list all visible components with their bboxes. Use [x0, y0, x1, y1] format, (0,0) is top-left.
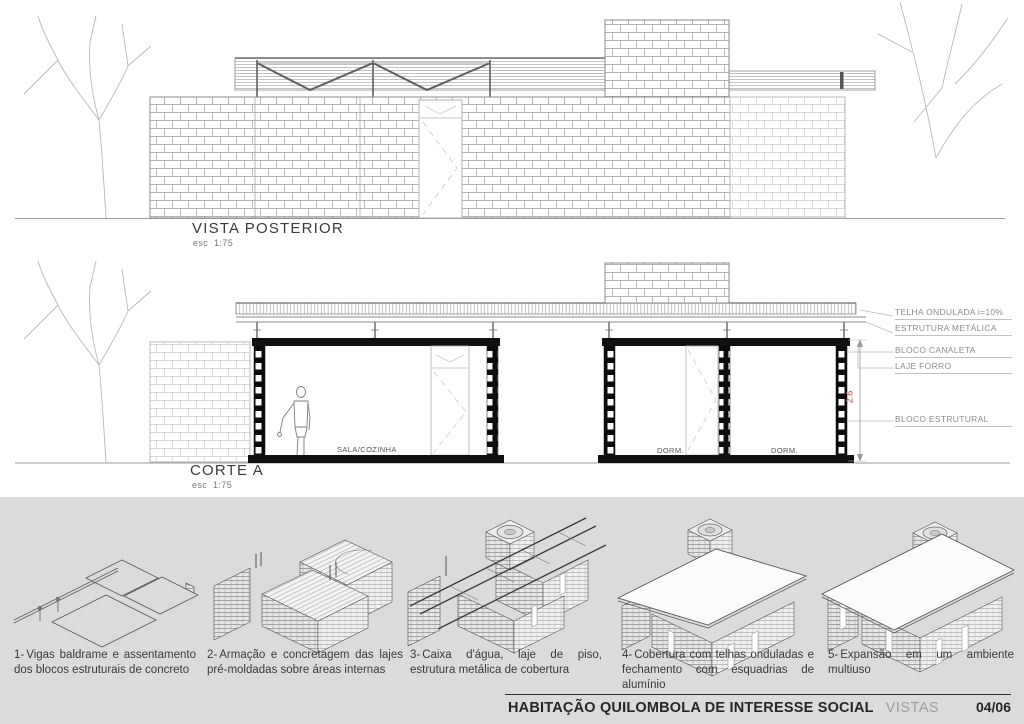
door-elevation	[419, 100, 462, 218]
corte-a-drawing	[15, 261, 1010, 463]
step-caption-5: 5-Expansão em um ambiente multiuso	[828, 648, 1014, 678]
step-caption-4: 4-Cobertura com telhas onduladas e fecha…	[622, 648, 814, 694]
tree-left-icon	[24, 16, 151, 218]
step-text: Caixa d'água, laje de piso, estrutura me…	[410, 649, 602, 676]
sheet-name: VISTAS	[886, 700, 940, 716]
step-number: 3-	[410, 649, 420, 661]
annotation-bloco-estrutural: BLOCO ESTRUTURAL	[895, 414, 1012, 427]
room-label-dorm-2: DORM.	[771, 446, 798, 455]
door-section-dorm	[686, 346, 718, 455]
tree-left-icon	[24, 261, 151, 463]
project-title: HABITAÇÃO QUILOMBOLA DE INTERESSE SOCIAL	[508, 700, 874, 716]
leader-lines	[847, 310, 894, 421]
annotation-bloco-canaleta: BLOCO CANALETA	[895, 345, 1012, 358]
door-section-sala	[431, 346, 469, 455]
room-label-sala: SALA/COZINHA	[337, 445, 397, 454]
step-text: Cobertura com telhas onduladas e fechame…	[622, 649, 814, 691]
step-number: 5-	[828, 649, 838, 661]
vista-posterior-drawing	[15, 2, 1008, 219]
room-label-dorm-1: DORM.	[657, 446, 684, 455]
step-caption-1: 1-Vigas baldrame e assentamento dos bloc…	[14, 648, 196, 678]
step-text: Expansão em um ambiente multiuso	[828, 649, 1014, 676]
annotation-estrutura-metalica: ESTRUTURA METÁLICA	[895, 323, 1012, 336]
sheet-artwork	[0, 0, 1024, 724]
vista-posterior-title: VISTA POSTERIOR	[192, 220, 344, 237]
step-caption-3: 3-Caixa d'água, laje de piso, estrutura …	[410, 648, 602, 678]
tree-right-icon	[878, 2, 1008, 158]
annotation-laje-forro: LAJE FORRO	[895, 361, 1012, 374]
footer-rule	[505, 694, 1011, 695]
drawing-sheet: VISTA POSTERIOR esc 1:75 CORTE A esc 1:7…	[0, 0, 1024, 724]
annotation-telha-ondulada: TELHA ONDULADA i=10%	[895, 307, 1012, 320]
human-figure	[278, 387, 311, 456]
corte-a-title: CORTE A	[190, 462, 264, 479]
step-number: 4-	[622, 649, 632, 661]
step-number: 1-	[14, 649, 24, 661]
vista-posterior-scale: esc 1:75	[193, 238, 233, 248]
corte-a-scale: esc 1:75	[192, 480, 232, 490]
step-text: Armação e concretagem das lajes pré-mold…	[207, 649, 403, 676]
step-caption-2: 2-Armação e concretagem das lajes pré-mo…	[207, 648, 403, 678]
dimension-label: 2.6	[844, 391, 854, 404]
sheet-number: 04/06	[976, 699, 1011, 715]
step-number: 2-	[207, 649, 217, 661]
step-text: Vigas baldrame e assentamento dos blocos…	[14, 649, 196, 676]
title-block: HABITAÇÃO QUILOMBOLA DE INTERESSE SOCIAL…	[508, 699, 1011, 716]
